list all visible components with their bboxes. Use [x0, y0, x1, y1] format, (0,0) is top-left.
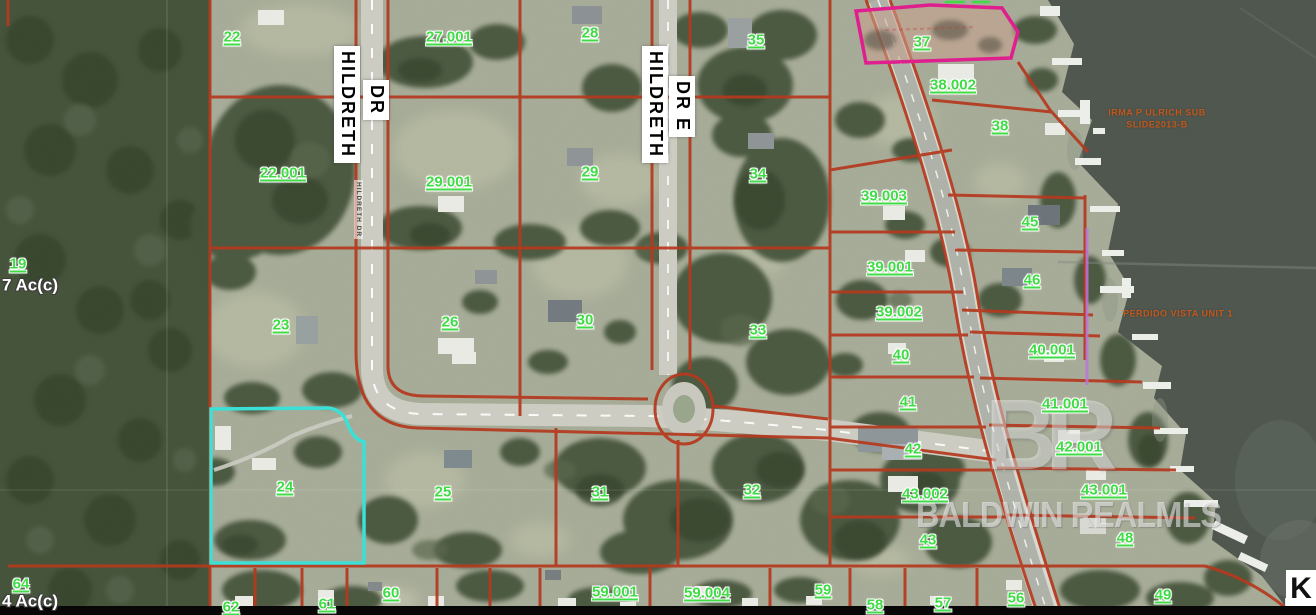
parcel-label-43.002: 43.002 — [902, 487, 948, 502]
parcel-label-39.001: 39.001 — [867, 260, 913, 275]
parcel-label-39.003: 39.003 — [861, 189, 907, 204]
parcel-label-48: 48 — [1117, 531, 1134, 546]
parcel-label-59.004: 59.004 — [684, 586, 730, 601]
parcel-label-43.001: 43.001 — [1081, 483, 1127, 498]
parcel-label-22.001: 22.001 — [260, 166, 306, 181]
subdivision-label: IRMA P ULRICH SUB — [1108, 109, 1206, 118]
parcel-label-60: 60 — [383, 586, 400, 601]
parcel-label-25: 25 — [435, 485, 452, 500]
parcel-label-62: 62 — [223, 600, 240, 615]
mls-watermark-text: BALDWIN REALMLS — [916, 494, 1221, 536]
parcel-label-59.001: 59.001 — [592, 585, 638, 600]
parcel-label-43: 43 — [920, 533, 937, 548]
parcel-label-61: 61 — [319, 597, 336, 612]
parcel-label-27.001: 27.001 — [426, 30, 472, 45]
parcel-label-19: 19 — [10, 257, 27, 272]
parcel-label-34: 34 — [750, 167, 767, 182]
parcel-label-24: 24 — [277, 480, 294, 495]
map-viewport[interactable]: HILDRETH DR HILDRETH DR E HILDRETH DR BR… — [0, 0, 1316, 615]
parcel-label-38: 38 — [992, 119, 1009, 134]
parcel-label-33: 33 — [750, 323, 767, 338]
parcel-label-35: 35 — [748, 33, 765, 48]
parcel-label-41.001: 41.001 — [1042, 397, 1088, 412]
road-label-hildreth-dr-suffix: DR — [363, 80, 389, 120]
letterbox-bar — [0, 606, 1316, 615]
road-label-small: HILDRETH DR — [354, 180, 363, 239]
parcel-label-38.002: 38.002 — [930, 78, 976, 93]
parcel-label-40.001: 40.001 — [1029, 343, 1075, 358]
parcel-label-41: 41 — [900, 395, 917, 410]
parcel-label-56: 56 — [1008, 591, 1025, 606]
parcel-label-29.001: 29.001 — [426, 175, 472, 190]
parcel-label-42: 42 — [905, 442, 922, 457]
parcel-label-64: 64 — [13, 577, 30, 592]
road-label-hildreth-dr-e-name: HILDRETH — [642, 46, 668, 163]
parcel-label-37: 37 — [914, 35, 931, 50]
subdivision-label: SLIDE2013-B — [1126, 121, 1188, 130]
parcel-label-46: 46 — [1024, 273, 1041, 288]
subdivision-label: PERDIDO VISTA UNIT 1 — [1123, 310, 1233, 319]
parcel-label-26: 26 — [442, 315, 459, 330]
parcel-label-28: 28 — [582, 26, 599, 41]
parcel-label-45: 45 — [1022, 215, 1039, 230]
parcel-label-49: 49 — [1155, 588, 1172, 603]
parcel-label-42.001: 42.001 — [1056, 440, 1102, 455]
parcel-label-23: 23 — [273, 318, 290, 333]
parcel-label-31: 31 — [592, 485, 609, 500]
parcel-label-32: 32 — [744, 483, 761, 498]
parcel-label-30: 30 — [577, 313, 594, 328]
parcel-label-58: 58 — [867, 598, 884, 613]
parcel-37-outline — [856, 5, 1018, 63]
parcel-label-57: 57 — [935, 596, 952, 611]
parcel-label-59: 59 — [815, 583, 832, 598]
road-label-hildreth-dr-e-suffix: DR E — [669, 76, 695, 137]
acreage-label: 7 Ac(c) — [2, 277, 58, 294]
parcel-label-39.002: 39.002 — [876, 305, 922, 320]
parcel-label-29: 29 — [582, 165, 599, 180]
acreage-label: 4 Ac(c) — [2, 593, 58, 610]
road-label-hildreth-dr-name: HILDRETH — [334, 46, 360, 163]
parcel-label-40: 40 — [893, 348, 910, 363]
parcel-label-22: 22 — [224, 30, 241, 45]
map-corner-label: K — [1286, 570, 1316, 608]
